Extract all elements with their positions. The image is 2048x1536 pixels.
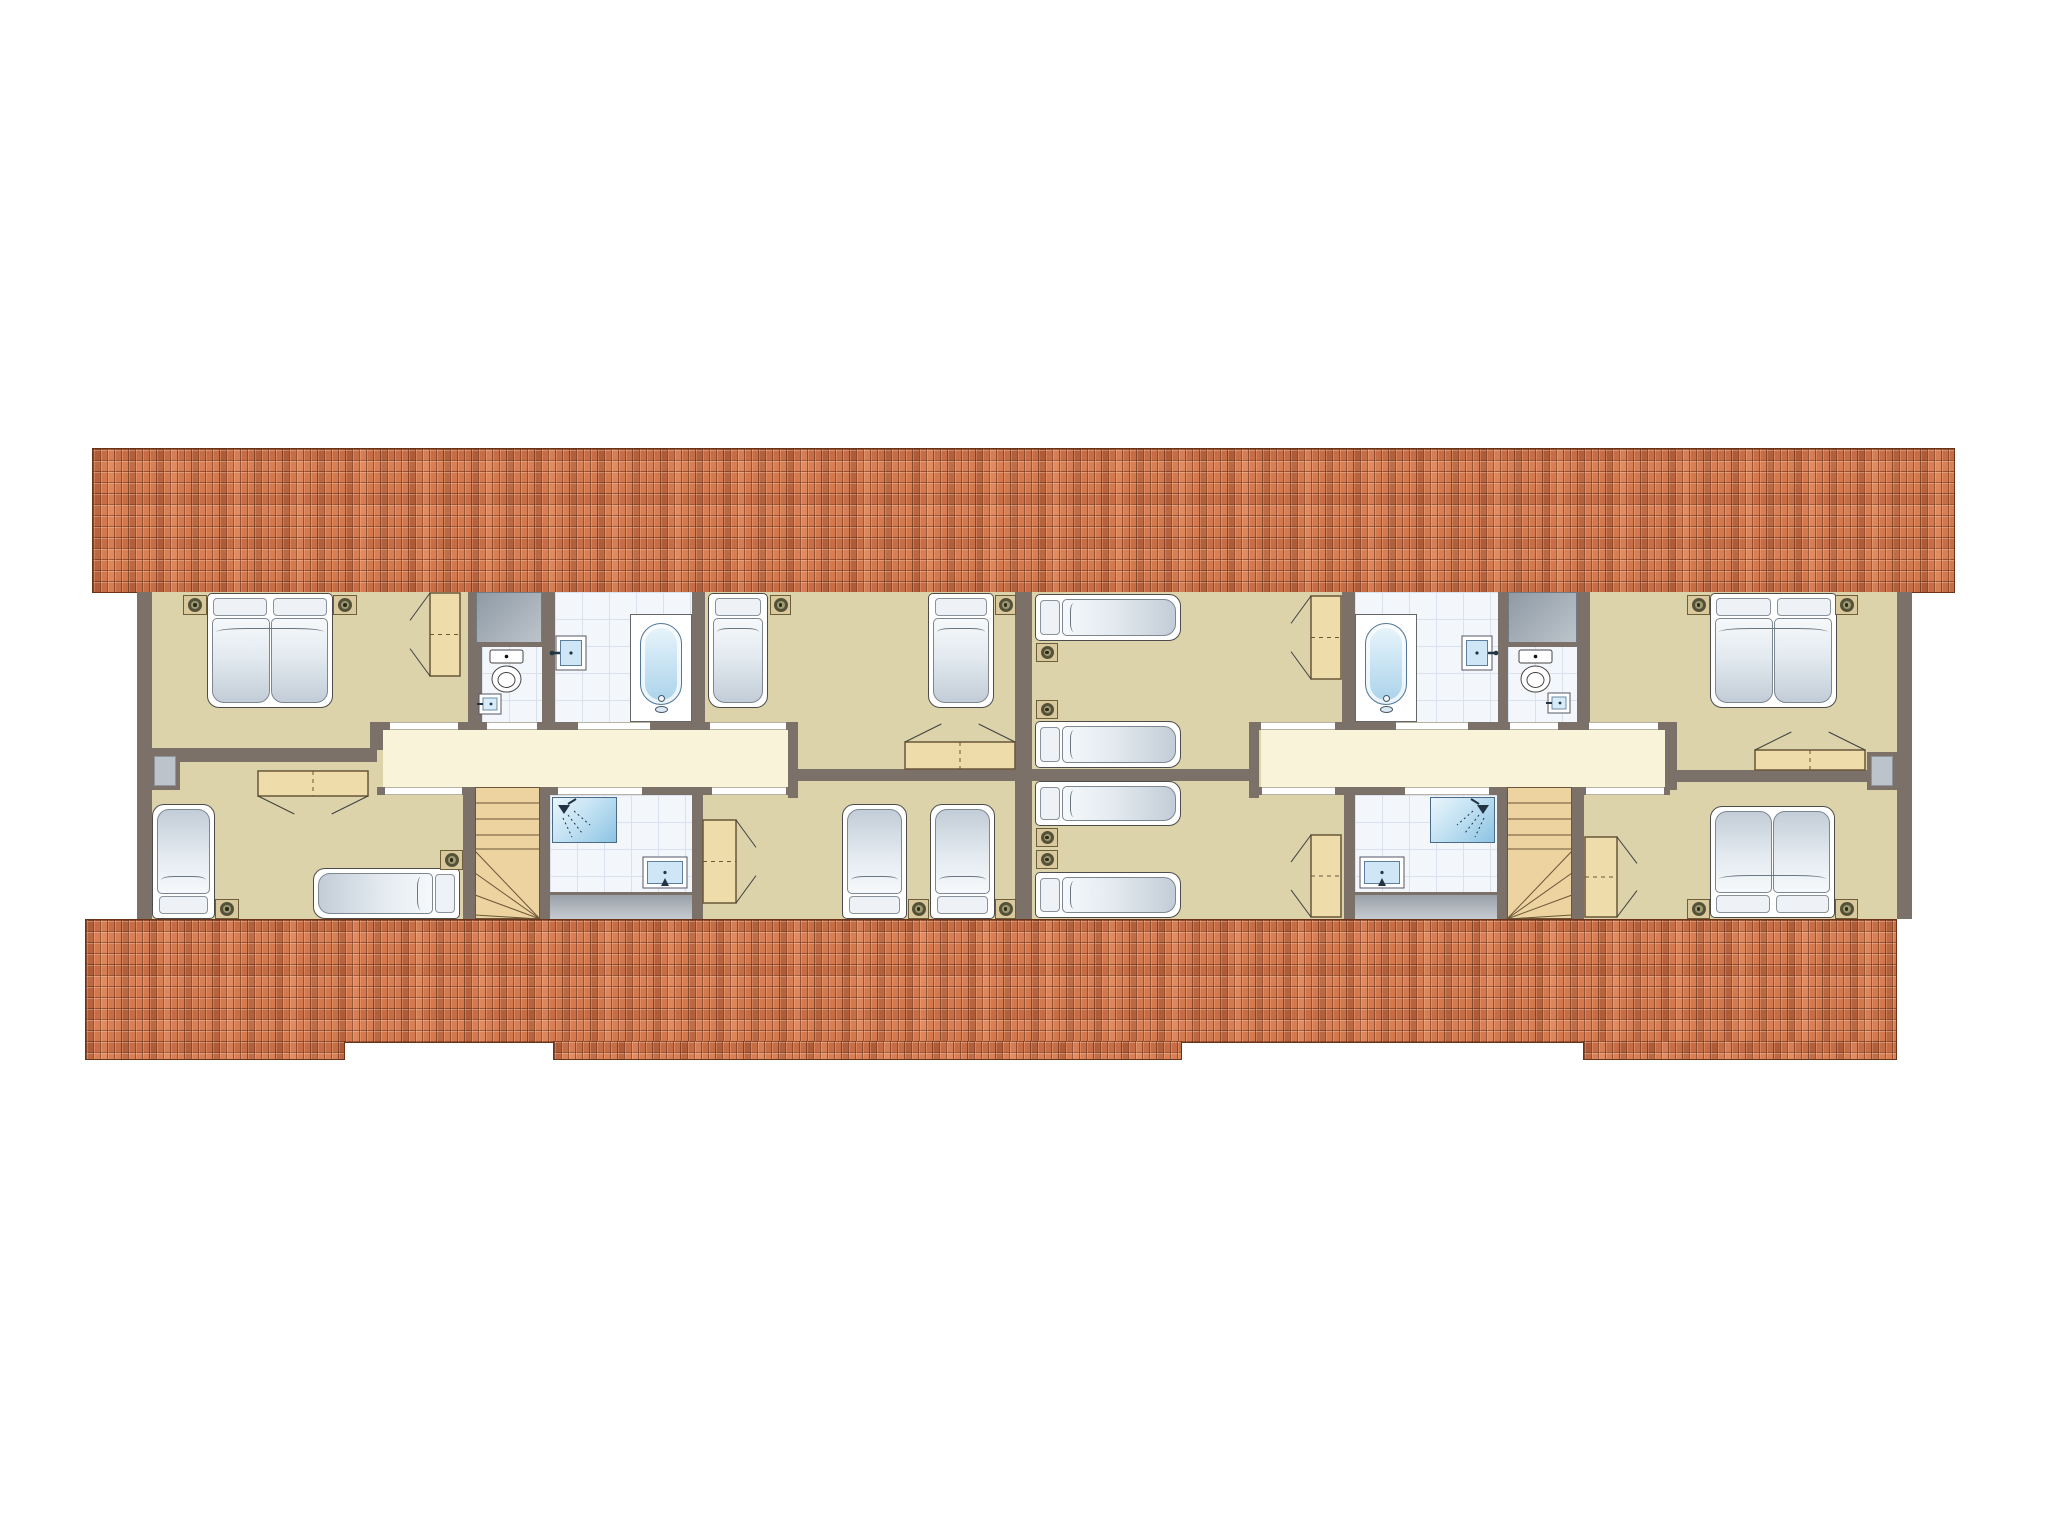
blanket-fold (161, 876, 206, 884)
blanket-fold (1070, 881, 1078, 909)
nightstand-h2 (1835, 899, 1858, 919)
shower-left (552, 797, 617, 843)
mattress (1062, 786, 1176, 821)
stairs-left-treads (475, 787, 540, 919)
lamp-icon (1041, 703, 1054, 716)
stairs-left (475, 787, 540, 919)
nightstand-a1 (183, 595, 207, 615)
pillow (935, 598, 987, 616)
bed-f2 (1035, 872, 1181, 918)
knee-strip-right (1355, 892, 1497, 919)
pillow (1777, 598, 1832, 616)
lamp-icon (1041, 853, 1054, 866)
window-left (150, 752, 180, 790)
blanket-fold (216, 628, 324, 636)
bed-d1 (842, 804, 907, 919)
lamp-icon (999, 902, 1013, 916)
roof-band-top (92, 448, 1955, 593)
lamp-icon (999, 598, 1013, 612)
door-room-g (1589, 722, 1658, 730)
blanket-fold (937, 628, 985, 636)
blanket-fold (1719, 875, 1826, 883)
wall-corridor-right-cap (1665, 722, 1677, 790)
corner-sink-left (475, 690, 505, 718)
lamp-icon (912, 902, 926, 916)
nightstand-f1 (1036, 828, 1058, 847)
bathtub-right (1355, 614, 1417, 722)
knee-strip-left (550, 892, 692, 919)
bed-b1 (708, 593, 768, 708)
corner-sink-right (1544, 689, 1574, 717)
nightstand-c2 (440, 850, 463, 870)
wall-wc-roomg (1577, 592, 1590, 730)
wall-shower-stairs-right (1497, 787, 1507, 919)
blanket-fold (717, 628, 759, 636)
wall-stairs-shower-left (540, 787, 550, 919)
lamp-icon (774, 598, 788, 612)
shower-right (1430, 797, 1495, 843)
lamp-icon (1692, 598, 1706, 612)
nightstand-d1 (908, 899, 929, 919)
faucet-icon (1380, 706, 1393, 713)
mattress (1062, 599, 1176, 636)
wall-bath-roomb (692, 592, 705, 722)
door-wc-left (487, 722, 537, 730)
dresser-b (879, 716, 1041, 795)
bed-c2 (313, 868, 460, 919)
sink-bath-left (548, 628, 594, 678)
pillow (1776, 895, 1830, 913)
window-left-glass (154, 756, 176, 786)
tub-basin (640, 623, 682, 705)
nightstand-h1 (1687, 899, 1710, 919)
wall-roomb-corridor (788, 722, 798, 798)
lamp-icon (1840, 902, 1854, 916)
pillow (937, 896, 988, 914)
pillow (435, 874, 455, 913)
sink-bath-right (1454, 628, 1500, 678)
lamp-icon (1041, 646, 1054, 659)
pillow (159, 896, 208, 914)
tub-basin (1365, 623, 1407, 705)
faucet-knob-icon (658, 695, 665, 702)
dresser-g (1729, 724, 1891, 796)
bed-room-g (1710, 593, 1837, 708)
shower-head-icon (1430, 797, 1495, 843)
wall-right-outer (1897, 592, 1912, 919)
door-room-h (1586, 787, 1664, 795)
nightstand-a2 (333, 595, 357, 615)
pillow (1040, 878, 1060, 912)
duct-right (1508, 592, 1577, 647)
nightstand-g2 (1835, 595, 1858, 615)
lamp-icon (1692, 902, 1706, 916)
wall-roomc-stairs (463, 795, 475, 919)
pillow (1040, 600, 1060, 635)
lamp-icon (1840, 598, 1854, 612)
wardrobe-a (404, 567, 486, 702)
blanket-fold (1719, 628, 1828, 636)
closet-d (677, 794, 762, 929)
bed-room-h (1710, 806, 1835, 918)
wall-roome-corridor (1249, 722, 1259, 798)
dresser-c (232, 745, 394, 822)
nightstand-e1 (1036, 643, 1058, 662)
door-bath-left (578, 722, 650, 730)
floor-plan (0, 0, 2048, 1536)
nightstand-d2 (995, 899, 1016, 919)
roof-band-bottom-ext-right (1583, 1041, 1897, 1060)
blanket-fold (1070, 730, 1078, 759)
door-room-e (1261, 722, 1335, 730)
pillow (273, 598, 327, 616)
bed-room-a (207, 593, 333, 708)
bed-c1 (152, 804, 215, 919)
sink-shower-right (1352, 849, 1412, 896)
faucet-knob-icon (1383, 695, 1390, 702)
roof-band-bottom-ext-left (85, 1041, 345, 1060)
blanket-fold (417, 877, 425, 910)
mattress (1062, 726, 1176, 763)
door-room-f (1262, 787, 1335, 795)
bed-d2 (930, 804, 995, 919)
blanket-fold (1070, 790, 1078, 817)
door-wc-right (1510, 722, 1558, 730)
lamp-icon (338, 598, 352, 612)
door-bath-right (1396, 722, 1468, 730)
shower-head-icon (552, 797, 617, 843)
nightstand-g1 (1687, 595, 1710, 615)
nightstand-e2 (1036, 700, 1058, 719)
pillow (1716, 895, 1770, 913)
roof-band-bottom (85, 919, 1897, 1043)
lamp-icon (1041, 831, 1054, 844)
pillow (1716, 598, 1771, 616)
toilet-left (488, 648, 525, 696)
lamp-icon (188, 598, 202, 612)
bathtub-left (630, 614, 692, 722)
pillow (715, 598, 761, 616)
nightstand-f2 (1036, 850, 1058, 869)
nightstand-c1 (215, 899, 239, 919)
lamp-icon (445, 853, 459, 867)
nightstand-b1 (770, 595, 791, 615)
bed-e2 (1035, 721, 1181, 768)
door-room-a (390, 722, 458, 730)
wall-ef-divider (1015, 769, 1249, 781)
pillow (213, 598, 267, 616)
bed-e1 (1035, 594, 1181, 641)
door-shower-left (558, 787, 642, 795)
faucet-icon (655, 706, 668, 713)
mattress (318, 873, 433, 914)
pillow (1040, 787, 1060, 820)
pillow (1040, 727, 1060, 762)
blanket-fold (851, 876, 898, 884)
door-room-b (710, 722, 786, 730)
corridor-right (1261, 730, 1665, 787)
blanket-fold (939, 876, 986, 884)
corridor-left (383, 730, 788, 787)
pillow (849, 896, 900, 914)
bed-b2 (928, 593, 994, 708)
roof-band-bottom-ext-mid (553, 1041, 1182, 1060)
door-room-c (385, 787, 462, 795)
bed-f1 (1035, 781, 1181, 826)
mattress (1062, 877, 1176, 913)
nightstand-b2 (995, 595, 1016, 615)
lamp-icon (220, 902, 234, 916)
blanket-fold (1070, 603, 1078, 632)
door-shower-right (1405, 787, 1489, 795)
